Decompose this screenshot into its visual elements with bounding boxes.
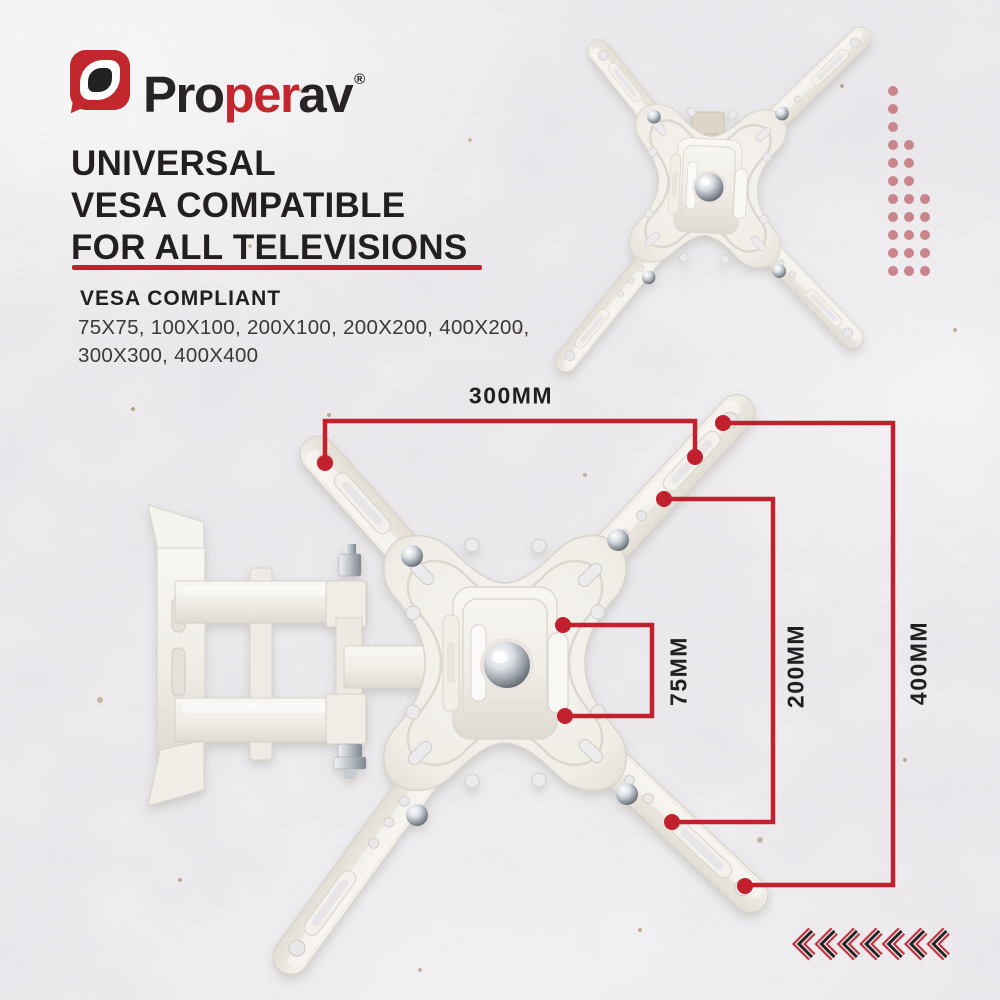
- headline-line1: UNIVERSAL: [71, 143, 468, 185]
- decor-dot: [920, 230, 930, 240]
- decor-dot: [888, 158, 898, 168]
- headline-line3: FOR ALL TELEVISIONS: [71, 227, 468, 269]
- properav-logo-icon: [70, 50, 130, 110]
- vesa-sizes-line1: 75X75, 100X100, 200X100, 200X200, 400X20…: [78, 314, 529, 342]
- decor-dot: [904, 230, 914, 240]
- vesa-sizes-list: 75X75, 100X100, 200X100, 200X200, 400X20…: [78, 314, 529, 370]
- dot-row: [888, 230, 930, 240]
- dot-row: [888, 122, 930, 132]
- decor-dot: [920, 266, 930, 276]
- product-infographic: Properav® UNIVERSAL VESA COMPATIBLE FOR …: [0, 0, 1000, 1000]
- decor-dot: [888, 194, 898, 204]
- logo-tail: [64, 94, 89, 118]
- dimension-label-75mm: 75MM: [666, 636, 693, 706]
- dot-row: [888, 140, 930, 150]
- dot-row: [888, 194, 930, 204]
- decor-dot: [920, 212, 930, 222]
- wall-arm: [148, 505, 454, 806]
- decor-dot: [904, 266, 914, 276]
- vesa-bracket: [266, 387, 775, 981]
- decor-dot: [904, 212, 914, 222]
- decor-dot: [904, 248, 914, 258]
- product-photo-small: [550, 8, 885, 392]
- wordmark-per: per: [224, 66, 299, 123]
- decor-dot: [920, 248, 930, 258]
- registered-trademark: ®: [354, 71, 365, 88]
- decor-dot: [888, 140, 898, 150]
- wordmark-pro: Pro: [143, 66, 224, 123]
- decor-dot: [920, 194, 930, 204]
- headline-underline: [72, 265, 482, 270]
- decor-dot: [904, 176, 914, 186]
- chevron-left-icon: [866, 931, 879, 957]
- brand-wordmark: Properav®: [143, 50, 365, 125]
- decor-dot: [888, 230, 898, 240]
- dimension-label-300mm: 300MM: [469, 383, 553, 410]
- chevron-left-icon: [889, 931, 902, 957]
- decor-dot: [904, 194, 914, 204]
- dots-pattern: [888, 86, 930, 276]
- chevron-left-icon: [933, 931, 946, 957]
- dimension-label-200mm: 200MM: [783, 624, 810, 708]
- dot-row: [888, 176, 930, 186]
- decor-dot: [888, 86, 898, 96]
- dimension-label-400mm: 400MM: [906, 621, 933, 705]
- decor-dot: [888, 248, 898, 258]
- chevron-left-icon: [821, 931, 834, 957]
- dot-row: [888, 266, 930, 276]
- vesa-compliant-title: VESA COMPLIANT: [80, 287, 281, 311]
- decor-dot: [888, 212, 898, 222]
- decor-dot: [888, 176, 898, 186]
- dot-row: [888, 104, 930, 114]
- chevron-left-icon: [799, 931, 812, 957]
- decor-dot: [888, 104, 898, 114]
- dot-row: [888, 158, 930, 168]
- brand-logo: Properav®: [70, 50, 365, 125]
- chevron-pattern: [791, 928, 961, 962]
- dot-row: [888, 248, 930, 258]
- wordmark-av: av: [298, 66, 352, 123]
- chevron-left-icon: [911, 931, 924, 957]
- headline-line2: VESA COMPATIBLE: [71, 185, 468, 227]
- decor-dot: [904, 140, 914, 150]
- dot-row: [888, 212, 930, 222]
- chevron-left-icon: [844, 931, 857, 957]
- decor-dot: [888, 122, 898, 132]
- vesa-sizes-line2: 300X300, 400X400: [78, 342, 529, 370]
- decor-dot: [888, 266, 898, 276]
- headline: UNIVERSAL VESA COMPATIBLE FOR ALL TELEVI…: [71, 143, 468, 269]
- dot-row: [888, 86, 930, 96]
- decor-dot: [904, 158, 914, 168]
